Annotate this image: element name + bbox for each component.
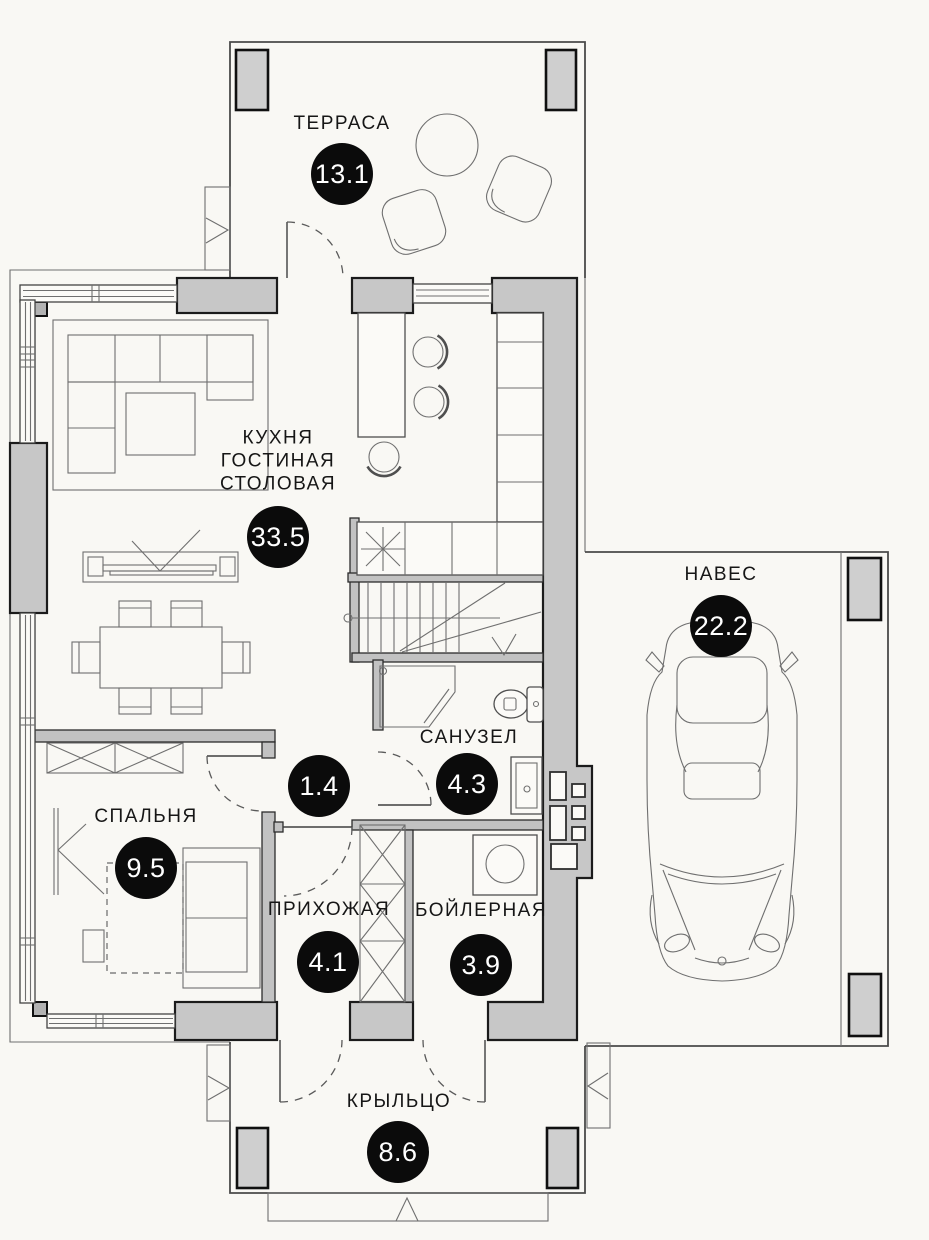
round-table-icon <box>416 114 478 176</box>
area-badge-bathroom: 4.3 <box>436 753 498 815</box>
room-label-bathroom: САНУЗЕЛ <box>420 727 518 749</box>
window <box>20 613 35 1003</box>
dining-table-icon <box>72 601 250 714</box>
terrace-furniture <box>378 114 556 258</box>
bar-counter-icon <box>358 313 405 437</box>
door-swing <box>280 1040 342 1102</box>
room-area: 4.1 <box>308 947 347 978</box>
room-label-kitchen-living-dining: КУХНЯ ГОСТИНАЯ СТОЛОВАЯ <box>220 427 336 496</box>
room-area: 33.5 <box>251 522 306 553</box>
bar-stool-icon <box>413 336 447 369</box>
floor-plan-drawing <box>0 0 929 1240</box>
door-swing <box>283 827 352 896</box>
door-swing <box>287 222 343 278</box>
area-badge-bedroom: 9.5 <box>115 837 177 899</box>
bar-stool-icon <box>368 442 401 476</box>
room-name: КРЫЛЬЦО <box>347 1091 451 1112</box>
terrace-outline <box>230 42 585 278</box>
room-label-carport: НАВЕС <box>685 564 758 586</box>
window <box>413 284 492 303</box>
room-name: ПРИХОЖАЯ <box>268 899 390 920</box>
door-swing <box>378 752 431 805</box>
room-area: 3.9 <box>461 950 500 981</box>
room-label-bedroom: СПАЛЬНЯ <box>94 806 197 828</box>
room-name: САНУЗЕЛ <box>420 727 518 748</box>
room-name: БОЙЛЕРНАЯ <box>415 900 547 921</box>
room-name-line: КУХНЯ <box>220 427 336 450</box>
column <box>849 974 881 1036</box>
toilet-icon <box>494 687 543 722</box>
car-icon <box>646 619 798 981</box>
stairs-direction-arrow <box>492 634 516 655</box>
stairs <box>344 582 541 655</box>
door-swing <box>207 756 262 811</box>
vanity-sink-icon <box>511 757 542 814</box>
nightstand-icon <box>83 930 104 962</box>
column <box>546 50 576 110</box>
column <box>547 1128 578 1188</box>
area-badge-carport: 22.2 <box>690 595 752 657</box>
room-area: 4.3 <box>447 769 486 800</box>
downspout-icon <box>207 1045 230 1121</box>
floor-plan: ТЕРРАСА 13.1 КУХНЯ ГОСТИНАЯ СТОЛОВАЯ 33.… <box>0 0 929 1240</box>
downspout-icon <box>205 187 230 270</box>
sink-icon <box>361 527 405 571</box>
column <box>848 558 881 620</box>
coffee-table-icon <box>126 393 195 455</box>
wardrobe-icon <box>47 743 183 773</box>
column <box>236 50 268 110</box>
tv-unit-icon <box>83 530 238 582</box>
window <box>20 300 35 443</box>
room-label-boiler: БОЙЛЕРНАЯ <box>415 900 547 922</box>
area-badge-porch: 8.6 <box>367 1121 429 1183</box>
room-area: 8.6 <box>378 1137 417 1168</box>
room-area: 9.5 <box>126 853 165 884</box>
room-name: ТЕРРАСА <box>293 113 390 134</box>
armchair-icon <box>482 151 556 226</box>
armchair-icon <box>378 186 449 258</box>
bedroom-furniture <box>54 808 260 988</box>
room-area: 1.4 <box>299 771 338 802</box>
room-name-line: ГОСТИНАЯ <box>220 450 336 473</box>
kitchen-furniture <box>357 313 543 575</box>
living-furniture <box>53 320 268 714</box>
room-name-line: СТОЛОВАЯ <box>220 473 336 496</box>
downspout-icon <box>587 1043 610 1128</box>
room-label-entry: ПРИХОЖАЯ <box>268 899 390 921</box>
room-label-porch: КРЫЛЬЦО <box>347 1091 451 1113</box>
area-badge-kitchen-living-dining: 33.5 <box>247 506 309 568</box>
area-badge-entry: 4.1 <box>297 931 359 993</box>
column <box>237 1128 268 1188</box>
bar-stool-icon <box>414 386 448 419</box>
boiler-icon <box>473 835 537 895</box>
room-name: НАВЕС <box>685 564 758 585</box>
area-badge-boiler: 3.9 <box>450 934 512 996</box>
window <box>47 1014 175 1028</box>
porch-steps <box>268 1193 548 1221</box>
room-label-terrace: ТЕРРАСА <box>293 113 390 135</box>
area-badge-terrace: 13.1 <box>311 143 373 205</box>
window <box>20 285 177 302</box>
area-badge-hall: 1.4 <box>288 755 350 817</box>
room-area: 22.2 <box>694 611 749 642</box>
bed-icon <box>183 848 260 988</box>
room-name: СПАЛЬНЯ <box>94 806 197 827</box>
room-area: 13.1 <box>315 159 370 190</box>
shower-icon <box>380 666 456 727</box>
